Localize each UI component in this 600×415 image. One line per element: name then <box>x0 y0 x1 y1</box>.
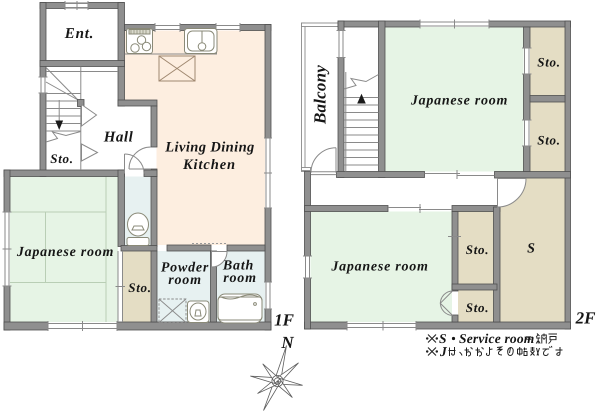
svg-text:S: S <box>527 242 535 257</box>
svg-text:Balcony: Balcony <box>311 65 330 125</box>
svg-text:Sto.: Sto. <box>50 151 73 166</box>
svg-text:Sto.: Sto. <box>537 55 560 70</box>
svg-text:Living Dining: Living Dining <box>164 140 254 156</box>
svg-text:Kitchen: Kitchen <box>182 157 236 173</box>
svg-text:Sto.: Sto. <box>466 242 489 257</box>
svg-text:Japanese room: Japanese room <box>330 260 428 275</box>
svg-text:N: N <box>280 333 294 352</box>
svg-text:Sto.: Sto. <box>466 300 489 315</box>
svg-text:Service room: Service room <box>459 331 535 346</box>
svg-text:2F: 2F <box>575 309 597 328</box>
svg-text:Japanese room: Japanese room <box>410 94 508 109</box>
svg-text:room: room <box>168 273 202 288</box>
svg-text:Ent.: Ent. <box>64 26 94 42</box>
svg-text:Sto.: Sto. <box>537 133 560 148</box>
svg-text:J: J <box>439 344 448 359</box>
svg-text:room: room <box>223 271 257 286</box>
svg-text:1F: 1F <box>274 311 295 330</box>
svg-text:Japanese room: Japanese room <box>16 245 114 260</box>
svg-text:=: = <box>525 331 532 345</box>
svg-text:Sto.: Sto. <box>128 280 151 295</box>
svg-text:Hall: Hall <box>103 130 134 146</box>
